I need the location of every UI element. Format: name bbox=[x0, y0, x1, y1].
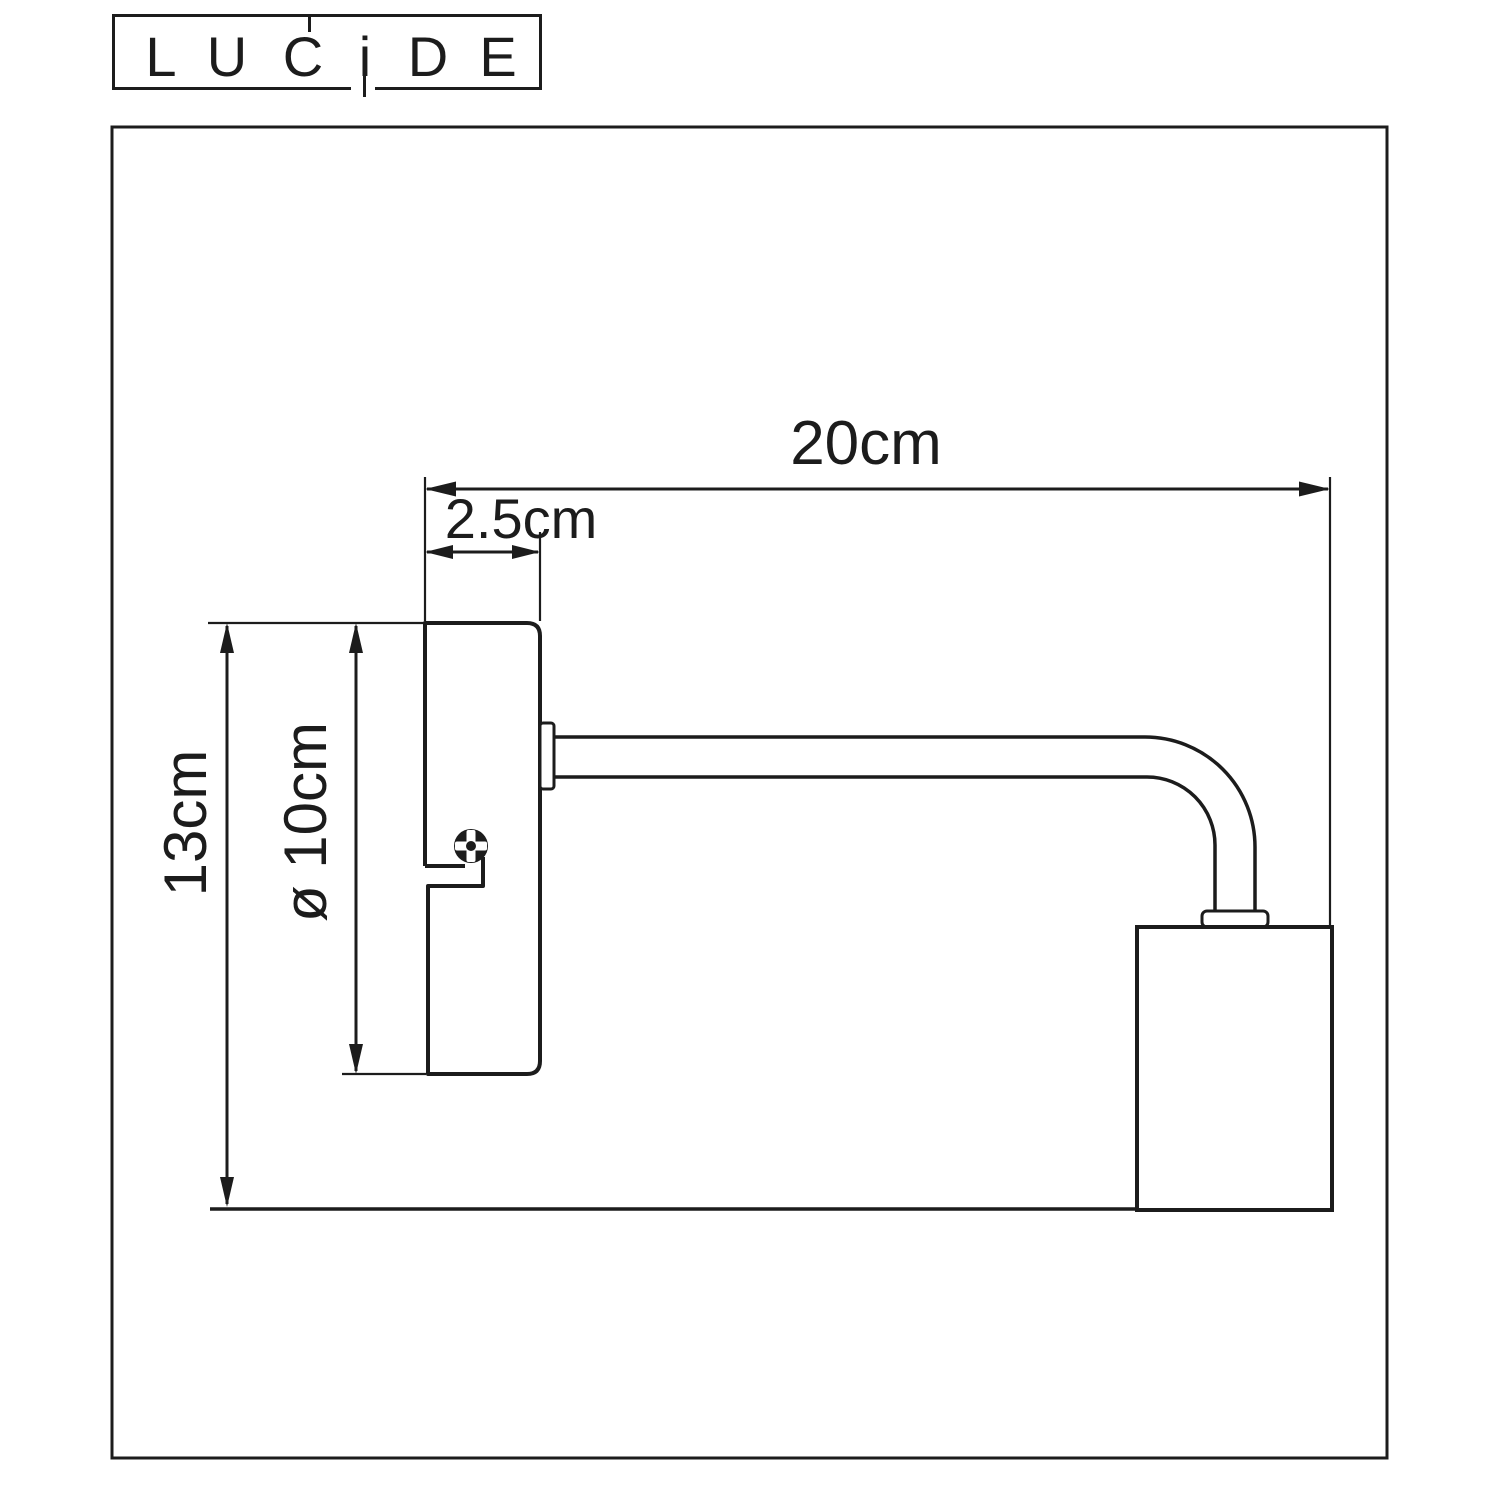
arrowhead-up-icon bbox=[349, 623, 363, 653]
lamp-collar bbox=[1202, 911, 1268, 927]
dimension-2-5cm: 2.5cm bbox=[425, 487, 597, 559]
dimension-label-2-5cm: 2.5cm bbox=[445, 487, 598, 550]
item-number-label: Item number: bbox=[143, 1496, 320, 1500]
lamp-head bbox=[1137, 927, 1332, 1210]
page: L U C i D E 20cm bbox=[0, 0, 1500, 1500]
arrowhead-down-icon bbox=[349, 1044, 363, 1074]
arrowhead-right-icon bbox=[1299, 482, 1330, 497]
arrowhead-down-icon bbox=[220, 1177, 234, 1207]
technical-drawing: 20cm 2.5cm 13cm ø 10cm bbox=[0, 0, 1500, 1500]
dimension-label-diameter-10cm: ø 10cm bbox=[272, 722, 339, 922]
arrowhead-up-icon bbox=[220, 623, 234, 653]
arm-tube-inner bbox=[554, 777, 1215, 911]
screw-icon bbox=[454, 829, 488, 863]
item-number-values: 45265/01/30; 45265/01/31 bbox=[344, 1496, 703, 1500]
dimension-diameter-10cm: ø 10cm bbox=[272, 623, 363, 1074]
dimension-label-13cm: 13cm bbox=[152, 750, 219, 897]
dimension-label-20cm: 20cm bbox=[790, 409, 942, 478]
footer: Item number:45265/01/30; 45265/01/31 bbox=[110, 1462, 703, 1500]
arm-tube-outer bbox=[554, 737, 1255, 911]
arm-flange bbox=[540, 723, 554, 789]
dimension-20cm: 20cm bbox=[425, 409, 1330, 497]
dimension-13cm: 13cm bbox=[152, 623, 234, 1207]
